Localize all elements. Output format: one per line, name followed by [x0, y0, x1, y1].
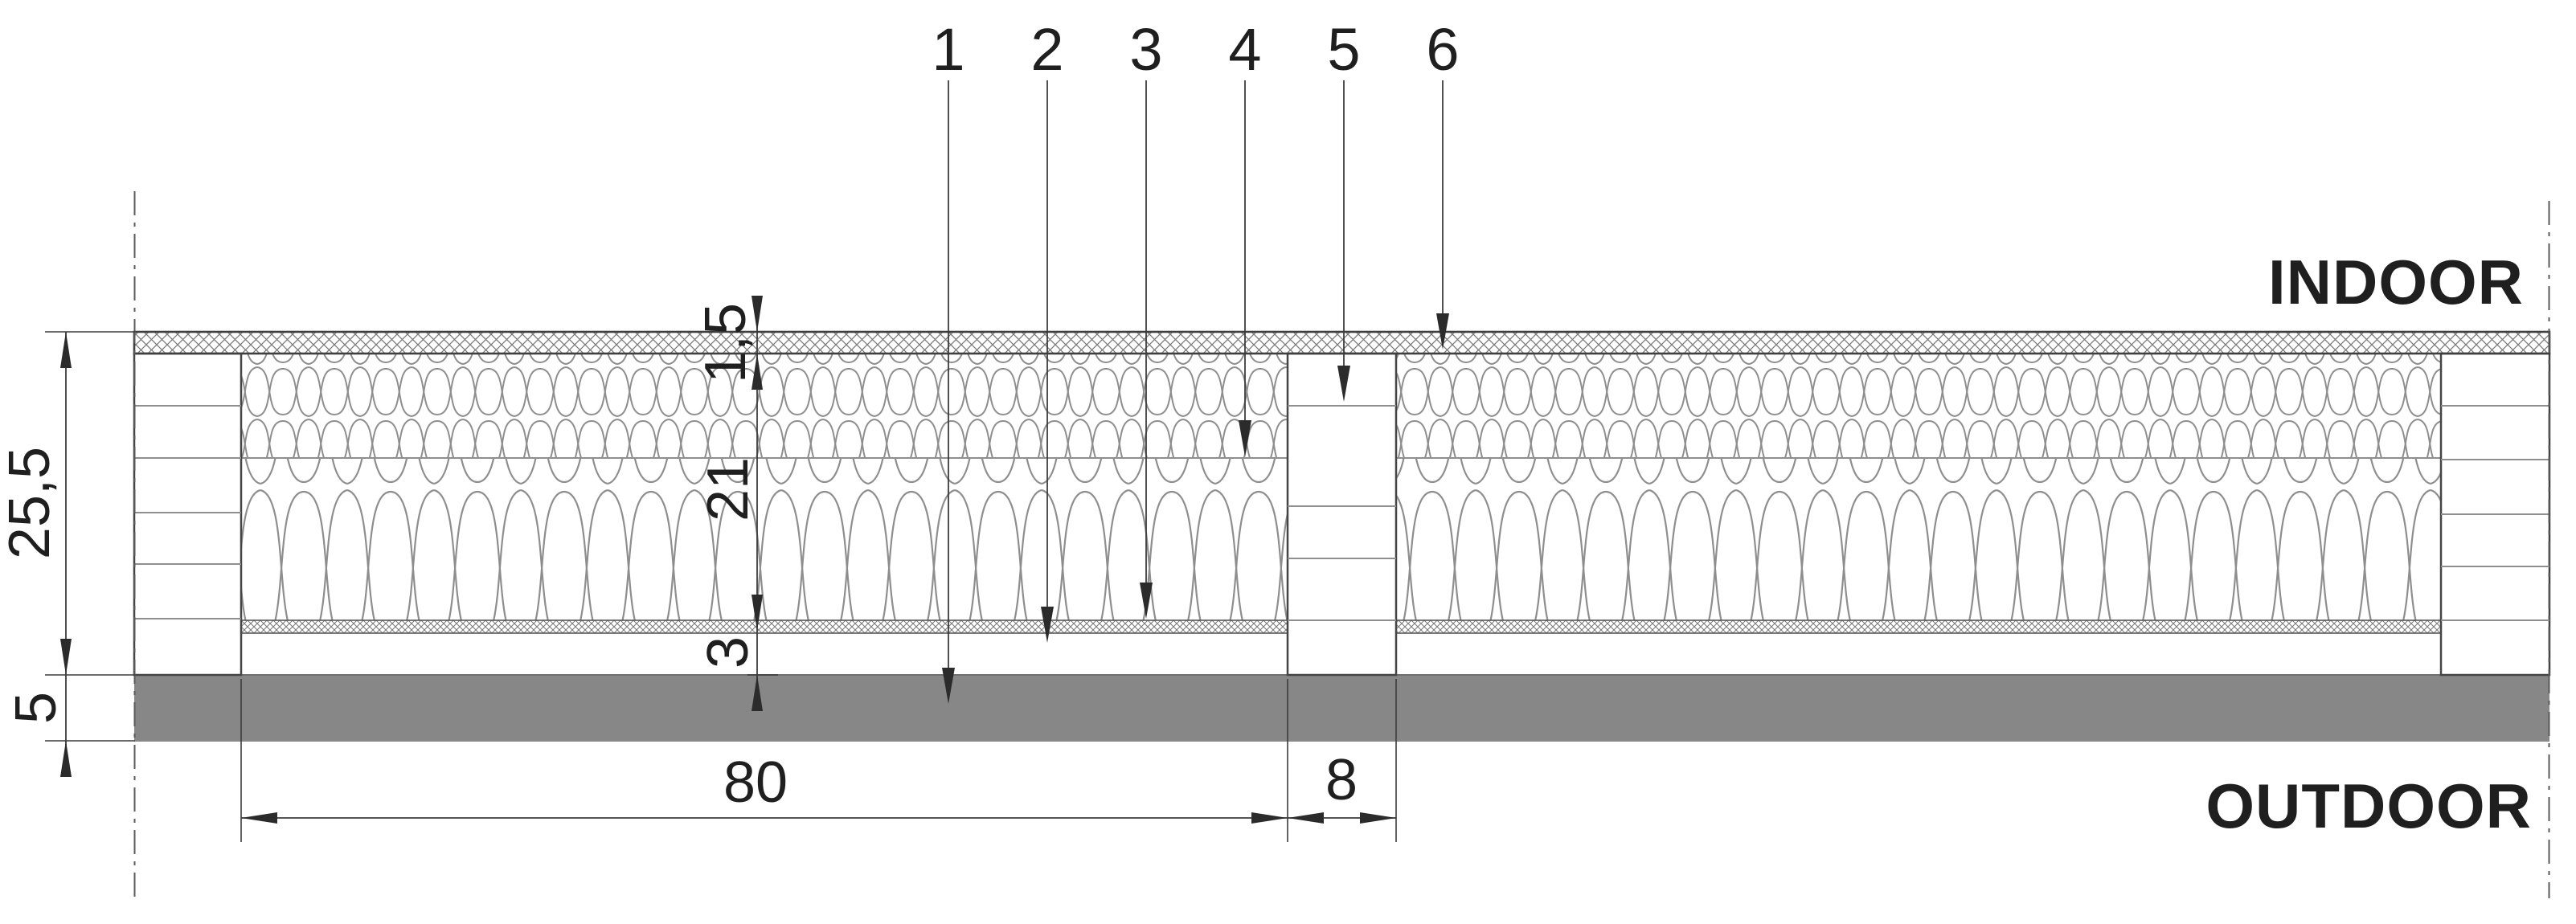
- membrane-strip-left: [241, 620, 1288, 633]
- callout-6-label: 6: [1426, 16, 1459, 83]
- bottom-dimension-chain: 80 8: [241, 748, 1396, 824]
- outdoor-label: OUTDOOR: [2205, 771, 2532, 841]
- dim-inner-lining-text: 1,5: [694, 303, 758, 383]
- inner-lining-board: [134, 332, 2549, 354]
- membrane-strip-right: [1396, 620, 2441, 633]
- arrowhead: [1360, 812, 1396, 824]
- dim-insulation-text: 21: [696, 457, 760, 521]
- arrowhead: [1337, 366, 1350, 402]
- callout-1-label: 1: [932, 16, 964, 83]
- arrowhead: [241, 812, 277, 824]
- dim-render-layer-text: 5: [4, 692, 68, 724]
- dim-bay-width-text: 80: [723, 750, 788, 815]
- timber-stud-middle: [1288, 354, 1396, 675]
- insulation-upper-right-bay: [1396, 354, 2441, 458]
- arrowhead: [60, 639, 72, 675]
- timber-edge-member-right: [2441, 354, 2549, 675]
- arrowhead: [60, 741, 72, 777]
- callout-4-label: 4: [1228, 16, 1261, 83]
- dim-batten-gap-text: 3: [696, 636, 760, 668]
- arrowhead: [60, 332, 72, 368]
- dim-stud-width-text: 8: [1325, 748, 1358, 812]
- callout-2-label: 2: [1030, 16, 1063, 83]
- render-layer: [134, 675, 2549, 742]
- dim-total-thickness-text: 25,5: [0, 447, 62, 559]
- arrowhead: [1251, 812, 1288, 824]
- timber-edge-member-left: [134, 354, 241, 675]
- callout-5-label: 5: [1327, 16, 1360, 83]
- insulation-upper-left-bay: [241, 354, 1288, 458]
- left-dimension-chain: 25,5 5: [0, 332, 135, 777]
- indoor-label: INDOOR: [2268, 247, 2524, 317]
- callout-3-label: 3: [1129, 16, 1162, 83]
- construction-detail-page: 25,5 5 1,5 21 3 80 8 1 2 3 4: [0, 0, 2576, 924]
- insulation-lower-right-bay: [1396, 458, 2441, 620]
- arrowhead: [1288, 812, 1324, 824]
- insulation-lower-left-bay: [241, 458, 1288, 620]
- wall-section-drawing: 25,5 5 1,5 21 3 80 8 1 2 3 4: [0, 0, 2576, 924]
